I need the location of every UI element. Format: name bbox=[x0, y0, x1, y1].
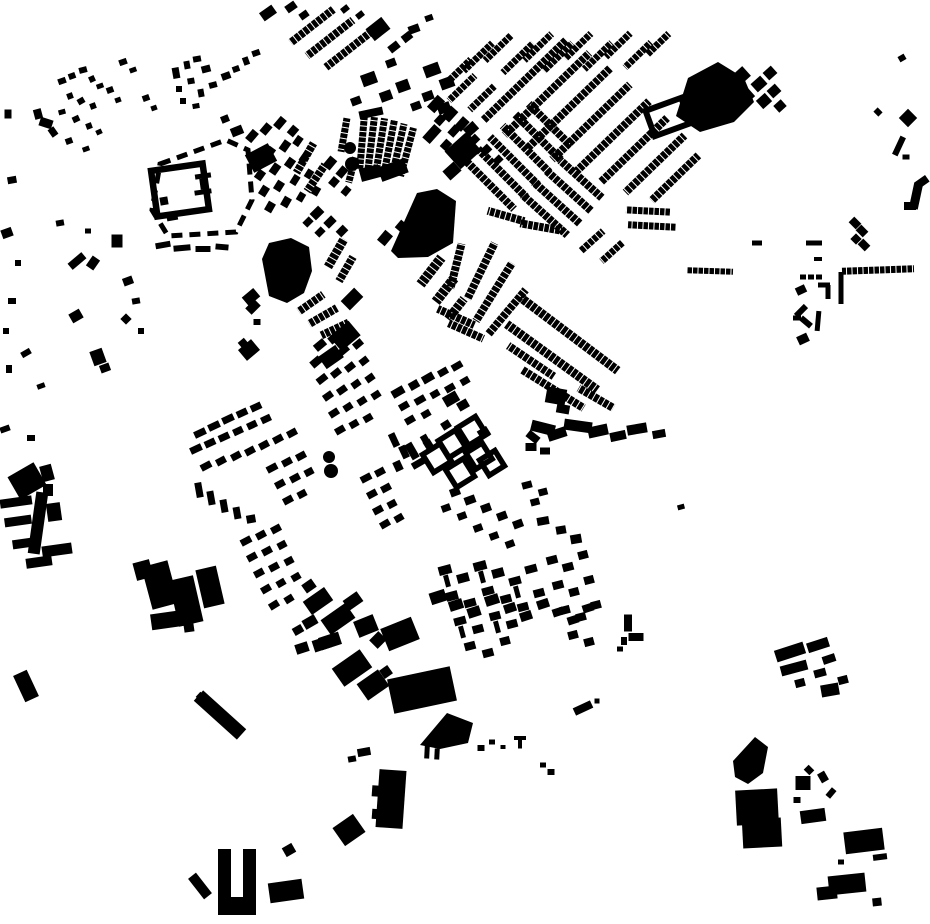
figure-ground-map bbox=[0, 0, 930, 924]
building bbox=[176, 86, 182, 92]
building bbox=[609, 430, 627, 442]
terraced-row bbox=[544, 168, 594, 214]
building bbox=[6, 365, 12, 373]
building bbox=[0, 495, 32, 508]
terraced-row bbox=[687, 267, 733, 275]
courtyard-building bbox=[480, 451, 505, 476]
building bbox=[420, 409, 431, 420]
building bbox=[464, 641, 477, 652]
building bbox=[282, 843, 297, 857]
building bbox=[583, 575, 595, 585]
building bbox=[355, 10, 365, 20]
building bbox=[187, 77, 195, 84]
building bbox=[85, 122, 93, 130]
building bbox=[193, 427, 207, 438]
building bbox=[250, 402, 263, 413]
building bbox=[268, 599, 280, 610]
building bbox=[796, 333, 810, 346]
building bbox=[822, 653, 837, 665]
building bbox=[872, 898, 882, 907]
building bbox=[825, 787, 836, 799]
building bbox=[521, 480, 532, 489]
building bbox=[183, 623, 194, 632]
building bbox=[837, 675, 849, 685]
building bbox=[364, 373, 375, 384]
building bbox=[0, 227, 13, 239]
terraced-row bbox=[623, 133, 688, 196]
building bbox=[372, 505, 384, 516]
building bbox=[312, 636, 333, 653]
terraced-row bbox=[842, 265, 914, 275]
building-polygon bbox=[420, 713, 473, 749]
building bbox=[242, 56, 250, 66]
building bbox=[106, 86, 115, 94]
building bbox=[362, 413, 373, 424]
building bbox=[422, 62, 441, 79]
building bbox=[230, 451, 242, 462]
building bbox=[99, 363, 111, 374]
building bbox=[215, 456, 227, 467]
building bbox=[799, 316, 813, 329]
building bbox=[774, 642, 806, 663]
building bbox=[155, 241, 171, 250]
building bbox=[25, 555, 52, 569]
building bbox=[752, 241, 762, 246]
building bbox=[68, 309, 83, 324]
building bbox=[472, 624, 485, 635]
building bbox=[357, 747, 371, 757]
building bbox=[246, 552, 258, 563]
building bbox=[348, 419, 359, 430]
building bbox=[270, 524, 282, 535]
round-building bbox=[345, 157, 359, 171]
building bbox=[453, 616, 467, 627]
building bbox=[336, 225, 349, 238]
terraced-row bbox=[293, 141, 317, 174]
building bbox=[129, 66, 137, 73]
building bbox=[816, 275, 822, 280]
building bbox=[800, 808, 827, 824]
building bbox=[816, 885, 837, 900]
building bbox=[258, 185, 270, 198]
building bbox=[392, 460, 403, 472]
building bbox=[517, 602, 530, 613]
building bbox=[284, 157, 296, 170]
building bbox=[552, 580, 565, 591]
building bbox=[188, 873, 212, 900]
building bbox=[438, 564, 453, 576]
round-building bbox=[323, 451, 335, 463]
building bbox=[290, 572, 301, 583]
building bbox=[377, 230, 393, 246]
building bbox=[499, 636, 511, 646]
building bbox=[189, 443, 203, 454]
building bbox=[796, 776, 811, 790]
building bbox=[505, 539, 516, 549]
building bbox=[240, 535, 253, 546]
building bbox=[562, 562, 575, 573]
building bbox=[624, 615, 632, 632]
building bbox=[350, 379, 361, 390]
building bbox=[142, 94, 151, 102]
building bbox=[255, 530, 267, 541]
building bbox=[261, 546, 273, 557]
building bbox=[500, 594, 513, 605]
building bbox=[330, 367, 342, 379]
building bbox=[253, 568, 265, 579]
building bbox=[122, 276, 134, 287]
building bbox=[96, 82, 104, 89]
building bbox=[301, 614, 318, 630]
round-building bbox=[324, 464, 338, 478]
building bbox=[489, 531, 500, 541]
building bbox=[742, 817, 782, 848]
building bbox=[89, 102, 97, 110]
building bbox=[379, 89, 394, 103]
building bbox=[58, 109, 66, 116]
building bbox=[530, 497, 541, 506]
building bbox=[266, 462, 279, 473]
building bbox=[617, 647, 623, 652]
building bbox=[395, 79, 411, 94]
map-canvas bbox=[0, 0, 930, 924]
terraced-row bbox=[579, 228, 606, 253]
building bbox=[350, 96, 362, 107]
building bbox=[65, 137, 74, 145]
building bbox=[283, 594, 294, 605]
building bbox=[595, 699, 600, 704]
building bbox=[260, 414, 272, 425]
building bbox=[303, 467, 314, 477]
building bbox=[272, 434, 284, 445]
building bbox=[273, 180, 285, 193]
building bbox=[38, 117, 53, 130]
building bbox=[332, 814, 365, 846]
building bbox=[390, 385, 405, 398]
building bbox=[5, 110, 12, 119]
building bbox=[360, 71, 378, 87]
building bbox=[246, 420, 258, 431]
building bbox=[76, 97, 85, 106]
building bbox=[794, 797, 801, 803]
building bbox=[873, 853, 888, 861]
building bbox=[66, 92, 74, 100]
building bbox=[376, 769, 407, 829]
building bbox=[328, 176, 340, 188]
building bbox=[429, 589, 448, 605]
building bbox=[192, 103, 200, 109]
building bbox=[287, 125, 300, 138]
building bbox=[540, 448, 550, 455]
building bbox=[413, 394, 426, 406]
building bbox=[296, 191, 307, 202]
building bbox=[200, 460, 213, 471]
building bbox=[220, 114, 230, 123]
building bbox=[68, 252, 87, 270]
building bbox=[370, 390, 381, 401]
building bbox=[536, 516, 549, 526]
building bbox=[408, 379, 421, 391]
building bbox=[387, 40, 401, 53]
building bbox=[360, 472, 373, 483]
building bbox=[245, 129, 259, 143]
building bbox=[193, 55, 202, 62]
building bbox=[806, 241, 822, 246]
building bbox=[196, 246, 211, 252]
building bbox=[82, 145, 90, 152]
building bbox=[567, 630, 579, 640]
building bbox=[899, 109, 917, 127]
terraced-row bbox=[336, 255, 357, 283]
building bbox=[274, 479, 286, 490]
building bbox=[814, 257, 822, 261]
building bbox=[767, 84, 782, 99]
building bbox=[230, 125, 244, 138]
building bbox=[57, 77, 67, 85]
building bbox=[567, 614, 580, 625]
building bbox=[276, 540, 287, 550]
building bbox=[302, 216, 313, 227]
building bbox=[491, 567, 505, 579]
building bbox=[244, 446, 256, 457]
building-polygon bbox=[262, 238, 312, 303]
building bbox=[794, 678, 806, 688]
building bbox=[519, 610, 533, 622]
building bbox=[508, 576, 522, 587]
building bbox=[275, 578, 286, 589]
building bbox=[573, 700, 594, 715]
building bbox=[577, 550, 589, 560]
building bbox=[283, 556, 294, 566]
building bbox=[478, 571, 486, 584]
terraced-row bbox=[598, 115, 670, 185]
building bbox=[233, 506, 242, 519]
building bbox=[903, 155, 910, 160]
building bbox=[826, 285, 831, 299]
building bbox=[548, 769, 555, 775]
building bbox=[536, 598, 550, 610]
building bbox=[873, 107, 882, 116]
building bbox=[207, 420, 221, 431]
building bbox=[838, 860, 844, 865]
building bbox=[85, 229, 91, 234]
building bbox=[264, 201, 276, 214]
building bbox=[88, 75, 96, 83]
building bbox=[204, 438, 217, 449]
building bbox=[524, 564, 538, 575]
building bbox=[197, 89, 204, 98]
building bbox=[393, 513, 404, 524]
building bbox=[195, 566, 224, 609]
building bbox=[526, 443, 537, 451]
building bbox=[756, 93, 772, 109]
building bbox=[221, 413, 235, 424]
building bbox=[795, 284, 807, 295]
building bbox=[340, 4, 350, 14]
building bbox=[258, 440, 270, 451]
building bbox=[458, 626, 466, 639]
terraced-row bbox=[549, 82, 632, 163]
building bbox=[356, 396, 367, 407]
building bbox=[46, 502, 62, 522]
building bbox=[398, 400, 410, 411]
building bbox=[429, 389, 440, 400]
building bbox=[282, 495, 294, 506]
building bbox=[295, 451, 307, 462]
building bbox=[482, 648, 495, 659]
building bbox=[800, 275, 806, 280]
building bbox=[750, 76, 767, 93]
building bbox=[0, 424, 11, 433]
building bbox=[450, 360, 463, 372]
building bbox=[806, 637, 830, 653]
building bbox=[323, 215, 336, 228]
building bbox=[298, 10, 309, 21]
building bbox=[441, 503, 452, 513]
building bbox=[773, 99, 786, 112]
building bbox=[232, 65, 241, 73]
building bbox=[95, 128, 103, 135]
terraced-row bbox=[531, 179, 582, 226]
building bbox=[284, 1, 298, 14]
building bbox=[340, 185, 351, 196]
building bbox=[366, 489, 378, 500]
building bbox=[506, 619, 519, 630]
building bbox=[7, 176, 17, 184]
building bbox=[652, 429, 666, 439]
building bbox=[120, 313, 131, 324]
building bbox=[289, 174, 300, 186]
building-polygon bbox=[733, 737, 768, 784]
building bbox=[489, 611, 502, 622]
building bbox=[582, 602, 595, 613]
building bbox=[380, 617, 420, 652]
building bbox=[385, 58, 397, 69]
building bbox=[112, 235, 123, 248]
building bbox=[443, 575, 451, 588]
building bbox=[314, 226, 325, 237]
building bbox=[251, 49, 261, 57]
building bbox=[568, 587, 580, 597]
building bbox=[892, 136, 906, 157]
building bbox=[546, 555, 559, 566]
terraced-row bbox=[628, 221, 676, 231]
terraced-row bbox=[307, 305, 339, 328]
building bbox=[316, 373, 329, 385]
building bbox=[493, 621, 501, 634]
building bbox=[206, 490, 215, 505]
building bbox=[236, 408, 249, 419]
building bbox=[533, 588, 546, 599]
building bbox=[457, 511, 468, 521]
building bbox=[555, 525, 566, 535]
building bbox=[817, 771, 829, 784]
building bbox=[221, 71, 232, 81]
building bbox=[246, 514, 256, 523]
building bbox=[286, 428, 298, 439]
terraced-row bbox=[599, 240, 624, 264]
building bbox=[808, 275, 814, 280]
building bbox=[556, 403, 570, 414]
building bbox=[380, 483, 392, 494]
building bbox=[208, 81, 217, 89]
building-polygon bbox=[218, 849, 256, 915]
building bbox=[138, 328, 144, 334]
building bbox=[183, 61, 190, 70]
building bbox=[813, 668, 827, 679]
building bbox=[538, 487, 549, 496]
building bbox=[259, 5, 277, 22]
building bbox=[218, 432, 231, 443]
building bbox=[342, 402, 353, 413]
building bbox=[173, 244, 190, 251]
terraced-row bbox=[574, 98, 651, 173]
building bbox=[410, 101, 422, 112]
building bbox=[459, 376, 470, 387]
building bbox=[440, 419, 452, 431]
building bbox=[180, 98, 186, 104]
building bbox=[86, 256, 100, 271]
building bbox=[36, 382, 45, 389]
terraced-row bbox=[432, 275, 458, 305]
building bbox=[480, 503, 492, 514]
building bbox=[372, 785, 381, 797]
building bbox=[268, 879, 304, 904]
building bbox=[422, 124, 441, 144]
building bbox=[301, 578, 317, 593]
building bbox=[3, 328, 9, 334]
building bbox=[336, 384, 348, 395]
building bbox=[4, 515, 32, 528]
building bbox=[215, 243, 228, 250]
building bbox=[8, 298, 16, 304]
building bbox=[489, 740, 495, 745]
building bbox=[348, 755, 357, 762]
building bbox=[434, 748, 440, 759]
building bbox=[15, 260, 21, 266]
building bbox=[281, 457, 293, 468]
building bbox=[503, 602, 517, 614]
building bbox=[626, 422, 647, 435]
building bbox=[159, 196, 168, 205]
building bbox=[259, 122, 272, 136]
building bbox=[629, 633, 644, 641]
building bbox=[292, 135, 303, 147]
building bbox=[501, 745, 506, 749]
building bbox=[78, 66, 87, 74]
building bbox=[456, 572, 470, 584]
building bbox=[843, 828, 884, 855]
building bbox=[334, 424, 346, 435]
building bbox=[13, 670, 39, 703]
building bbox=[201, 64, 212, 73]
building bbox=[279, 139, 292, 153]
building bbox=[41, 542, 72, 557]
building bbox=[322, 390, 334, 401]
building bbox=[512, 519, 524, 530]
building bbox=[897, 54, 906, 63]
building bbox=[56, 219, 65, 226]
building bbox=[677, 504, 685, 511]
building bbox=[372, 809, 381, 820]
building bbox=[194, 482, 203, 498]
building bbox=[89, 348, 106, 367]
building bbox=[583, 637, 595, 647]
building bbox=[388, 432, 400, 448]
building bbox=[820, 683, 840, 698]
building bbox=[341, 288, 364, 311]
terraced-row bbox=[417, 255, 446, 288]
